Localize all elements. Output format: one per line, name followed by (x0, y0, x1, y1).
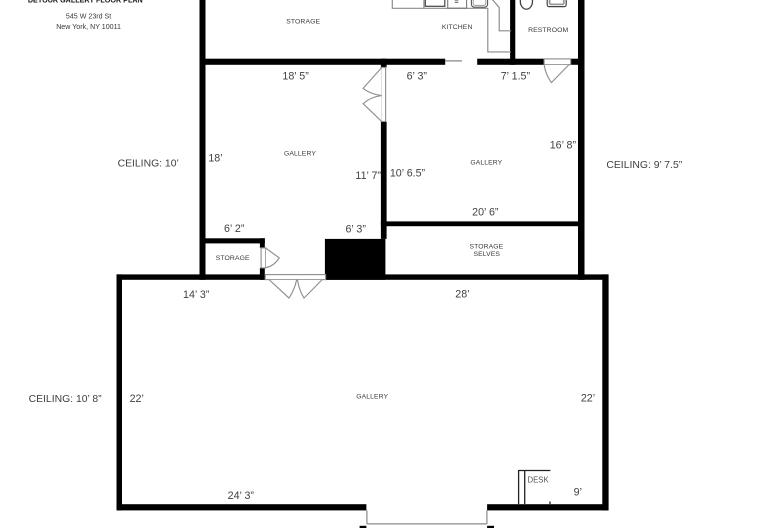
svg-text:20’ 6”: 20’ 6” (472, 206, 499, 218)
svg-text:7’ 1.5”: 7’ 1.5” (501, 70, 531, 82)
svg-text:GALLERY: GALLERY (356, 393, 388, 400)
svg-text:6’ 3”: 6’ 3” (345, 223, 366, 235)
svg-text:CEILING: 10’ 8”: CEILING: 10’ 8” (29, 394, 102, 405)
svg-text:GALLERY: GALLERY (470, 159, 502, 166)
svg-text:18’ 5”: 18’ 5” (282, 70, 309, 82)
svg-text:28’: 28’ (455, 288, 469, 300)
svg-text:STORAGE: STORAGE (216, 255, 250, 262)
svg-text:22’: 22’ (130, 393, 144, 405)
svg-text:DETOUR GALLERY FLOOR PLAN: DETOUR GALLERY FLOOR PLAN (28, 0, 143, 5)
svg-text:CEILING: 9’ 7.5”: CEILING: 9’ 7.5” (606, 160, 682, 171)
svg-text:16’ 8”: 16’ 8” (550, 140, 577, 152)
svg-text:24’ 3”: 24’ 3” (228, 490, 255, 502)
svg-text:545 W 23rd St: 545 W 23rd St (66, 12, 111, 20)
svg-text:CEILING: 10’: CEILING: 10’ (118, 158, 179, 169)
svg-text:9’: 9’ (574, 486, 582, 498)
svg-text:SELVES: SELVES (474, 251, 501, 258)
svg-text:GALLERY: GALLERY (284, 151, 316, 158)
svg-text:18’: 18’ (208, 153, 222, 165)
svg-text:14’ 3”: 14’ 3” (183, 289, 210, 301)
svg-text:6’ 2”: 6’ 2” (224, 223, 245, 235)
svg-text:10’ 6.5”: 10’ 6.5” (390, 167, 426, 179)
svg-text:KITCHEN: KITCHEN (442, 24, 473, 31)
svg-text:6’ 3”: 6’ 3” (407, 70, 428, 82)
svg-text:22’: 22’ (581, 393, 595, 405)
svg-text:11’ 7”: 11’ 7” (355, 170, 381, 182)
svg-text:DESK: DESK (527, 475, 549, 484)
svg-text:STORAGE: STORAGE (286, 18, 320, 25)
svg-text:RESTROOM: RESTROOM (528, 27, 568, 34)
svg-text:STORAGE: STORAGE (469, 243, 503, 250)
svg-text:New York, NY 10011: New York, NY 10011 (56, 23, 121, 31)
